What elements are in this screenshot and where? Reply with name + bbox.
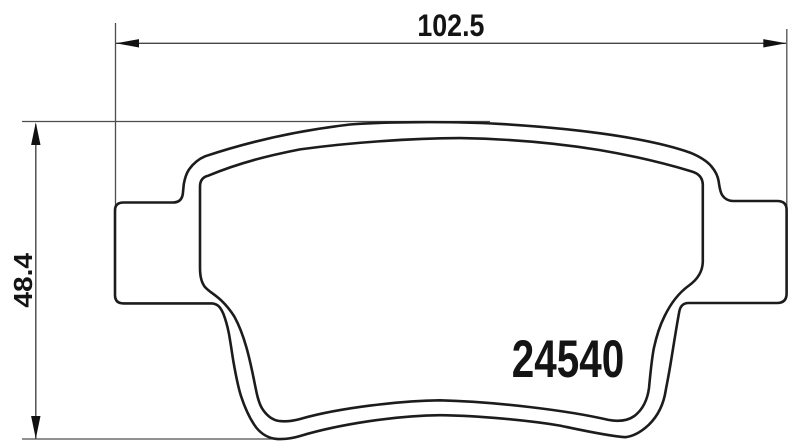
svg-text:48.4: 48.4: [9, 253, 38, 308]
svg-text:24540: 24540: [512, 330, 624, 388]
svg-text:102.5: 102.5: [417, 9, 484, 43]
